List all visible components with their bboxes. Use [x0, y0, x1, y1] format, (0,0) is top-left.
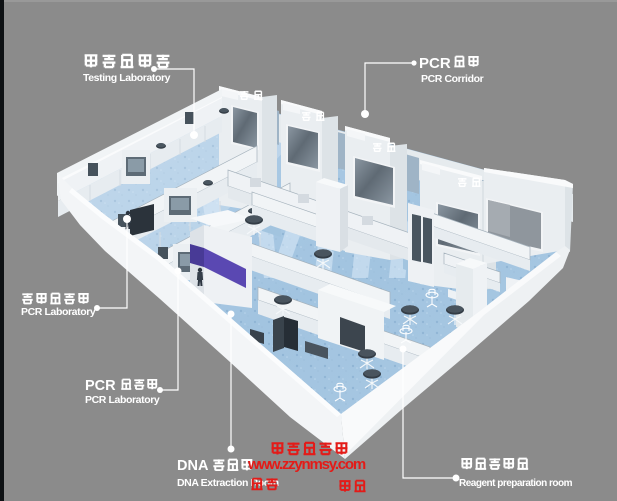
svg-text:PCR: PCR: [85, 378, 116, 394]
svg-text:PCR Laboratory: PCR Laboratory: [21, 306, 96, 318]
svg-text:PCR: PCR: [419, 55, 451, 72]
svg-text:DNA Extraction Room: DNA Extraction Room: [177, 477, 279, 489]
svg-text:DNA: DNA: [177, 458, 209, 474]
svg-text:PCR Corridor: PCR Corridor: [421, 73, 484, 85]
svg-text:Testing Laboratory: Testing Laboratory: [83, 72, 171, 84]
svg-text:Reagent preparation room: Reagent preparation room: [459, 478, 573, 489]
svg-text:www.zzynmsy.com: www.zzynmsy.com: [247, 456, 366, 473]
svg-text:PCR Laboratory: PCR Laboratory: [85, 394, 160, 406]
